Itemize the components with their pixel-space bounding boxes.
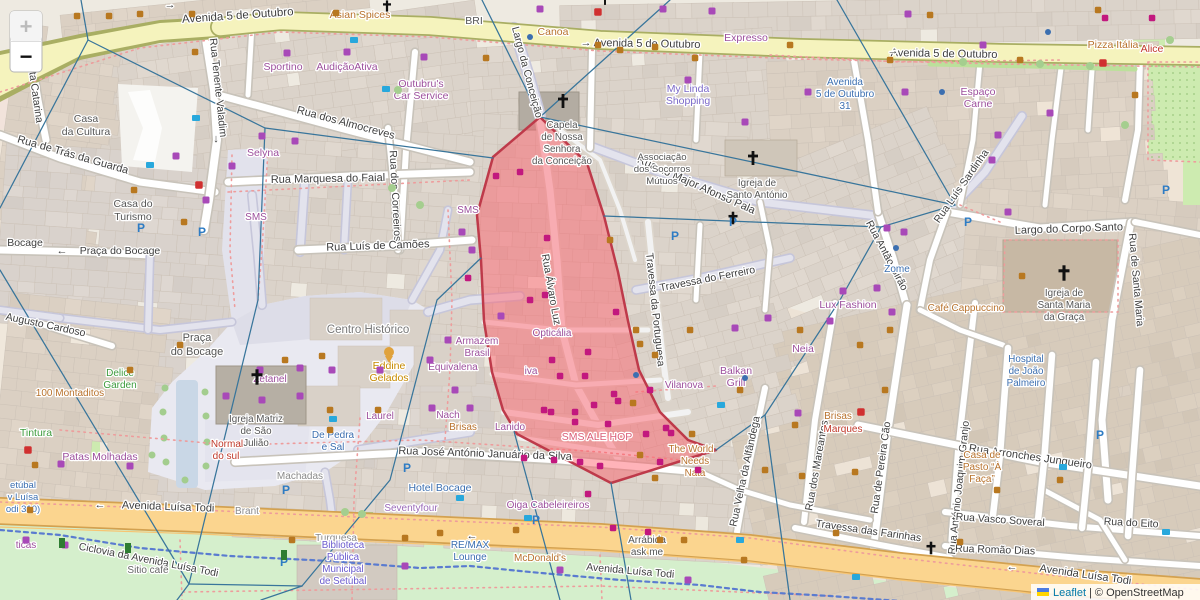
svg-text:→: → — [888, 45, 899, 57]
svg-text:Brant: Brant — [235, 506, 259, 517]
svg-text:P: P — [403, 461, 411, 475]
svg-text:etúbal: etúbal — [10, 480, 36, 491]
svg-text:Brasil: Brasil — [464, 348, 489, 359]
svg-text:Casa de: Casa de — [963, 450, 1001, 461]
svg-text:Leaflet: Leaflet — [1053, 587, 1086, 599]
svg-text:SMS: SMS — [457, 205, 479, 216]
svg-text:de Nossa: de Nossa — [541, 132, 583, 143]
svg-text:odi 310): odi 310) — [6, 504, 40, 515]
svg-text:Oiga Cabeleireiros: Oiga Cabeleireiros — [507, 500, 590, 511]
svg-text:P: P — [532, 513, 540, 527]
svg-text:| © OpenStreetMap: | © OpenStreetMap — [1089, 587, 1184, 599]
svg-text:Carne: Carne — [964, 98, 993, 110]
svg-text:de João: de João — [1009, 366, 1044, 377]
svg-text:P: P — [1162, 183, 1170, 197]
svg-text:Seventyfour: Seventyfour — [384, 503, 438, 514]
svg-text:Garden: Garden — [103, 380, 136, 391]
svg-text:5 de Outubro: 5 de Outubro — [816, 89, 875, 100]
svg-text:Bocage: Bocage — [7, 237, 43, 249]
svg-text:P: P — [198, 225, 206, 239]
svg-text:e Sal: e Sal — [322, 442, 345, 453]
svg-text:My Linda: My Linda — [667, 83, 710, 95]
svg-text:Machadas: Machadas — [277, 471, 323, 482]
svg-text:100 Montaditos: 100 Montaditos — [36, 388, 104, 399]
svg-text:Patas Molhadas: Patas Molhadas — [62, 451, 137, 463]
svg-text:↓: ↓ — [213, 133, 219, 145]
svg-text:Gelados: Gelados — [369, 372, 408, 384]
svg-text:←: ← — [57, 245, 68, 257]
svg-text:→: → — [165, 0, 176, 11]
svg-text:→: → — [581, 37, 592, 49]
svg-text:de Setúbal: de Setúbal — [320, 576, 367, 587]
svg-text:+: + — [20, 14, 33, 39]
svg-text:Senhora: Senhora — [543, 144, 581, 155]
svg-text:←: ← — [95, 499, 106, 511]
svg-text:Avenida 5 de Outubro: Avenida 5 de Outubro — [891, 47, 998, 61]
svg-text:Municipal: Municipal — [322, 564, 363, 575]
svg-text:P: P — [671, 229, 679, 243]
svg-text:Capela: Capela — [546, 120, 578, 131]
svg-text:Equivalena: Equivalena — [428, 362, 478, 373]
svg-text:Needs: Needs — [681, 456, 709, 467]
svg-text:Faça”: Faça” — [969, 474, 995, 485]
svg-text:Brisas: Brisas — [824, 411, 852, 422]
svg-text:Casa: Casa — [74, 113, 99, 125]
svg-text:Vilanova: Vilanova — [665, 380, 704, 391]
svg-text:Santa Maria: Santa Maria — [1038, 300, 1091, 311]
svg-text:Outubru's: Outubru's — [398, 78, 443, 90]
svg-text:31: 31 — [839, 101, 851, 112]
svg-text:Praça: Praça — [183, 332, 213, 344]
svg-text:Santo António: Santo António — [726, 190, 788, 201]
svg-text:Espaço: Espaço — [960, 86, 995, 98]
svg-text:Opticália: Opticália — [533, 328, 572, 339]
svg-text:Café Cappuccino: Café Cappuccino — [928, 303, 1005, 314]
svg-text:Avenida 5 de Outubro: Avenida 5 de Outubro — [594, 37, 701, 51]
svg-text:BRI: BRI — [465, 15, 483, 27]
svg-text:Pasto “À: Pasto “À — [963, 460, 1002, 473]
svg-text:de São: de São — [240, 426, 272, 437]
svg-text:Pizza Itália: Pizza Itália — [1088, 39, 1139, 51]
svg-text:Pública: Pública — [327, 552, 360, 563]
svg-text:v Luísa: v Luísa — [8, 492, 39, 503]
svg-text:Alice: Alice — [1141, 43, 1164, 55]
svg-text:Armazem: Armazem — [456, 336, 499, 347]
svg-text:P: P — [137, 221, 145, 235]
svg-text:Igreja Matriz: Igreja Matriz — [229, 414, 283, 425]
svg-text:Sitio cafe: Sitio cafe — [127, 565, 169, 576]
svg-text:RE/MAX: RE/MAX — [451, 540, 490, 551]
svg-text:Julião: Julião — [243, 438, 269, 449]
svg-text:SMS: SMS — [245, 212, 267, 223]
svg-text:da Graça: da Graça — [1044, 312, 1085, 323]
svg-text:Neia: Neia — [792, 343, 814, 355]
svg-text:Tintura: Tintura — [20, 427, 52, 439]
svg-text:SMS ALE HOP: SMS ALE HOP — [562, 431, 633, 443]
svg-text:Lux Fashion: Lux Fashion — [819, 299, 876, 311]
svg-text:P: P — [282, 483, 290, 497]
svg-text:Zome: Zome — [884, 264, 910, 275]
svg-text:Selyna: Selyna — [247, 147, 279, 159]
svg-text:Avenida: Avenida — [827, 77, 863, 88]
svg-text:Igreja de: Igreja de — [1045, 288, 1084, 299]
svg-text:Sportino: Sportino — [263, 61, 302, 73]
svg-text:da Cultura: da Cultura — [62, 126, 111, 138]
svg-text:AudiçãoAtiva: AudiçãoAtiva — [316, 61, 377, 73]
svg-text:Biblioteca: Biblioteca — [322, 540, 365, 551]
svg-text:Centro Histórico: Centro Histórico — [327, 324, 409, 336]
svg-text:da Conceição: da Conceição — [532, 156, 592, 167]
svg-text:Lounge: Lounge — [453, 552, 487, 563]
svg-text:P: P — [964, 215, 972, 229]
svg-text:Brisas: Brisas — [449, 422, 477, 433]
svg-text:Car Service: Car Service — [394, 90, 449, 102]
svg-text:Associação: Associação — [637, 152, 686, 163]
svg-text:The World: The World — [668, 444, 713, 455]
svg-text:Normal: Normal — [211, 439, 243, 450]
svg-text:P: P — [1096, 428, 1104, 442]
svg-text:Expresso: Expresso — [724, 32, 768, 44]
svg-text:Rua Marquesa do Faial: Rua Marquesa do Faial — [271, 172, 386, 186]
svg-text:Turismo: Turismo — [114, 211, 152, 223]
svg-text:Igreja de: Igreja de — [738, 178, 777, 189]
svg-text:Casa do: Casa do — [113, 198, 152, 210]
svg-text:Praça do Bocage: Praça do Bocage — [80, 245, 161, 257]
svg-text:Nach: Nach — [436, 410, 459, 421]
svg-text:Hospital: Hospital — [1008, 354, 1043, 365]
svg-text:←: ← — [1007, 561, 1018, 573]
svg-text:Marques: Marques — [824, 424, 863, 435]
svg-text:Lanido: Lanido — [495, 422, 525, 433]
svg-text:Shopping: Shopping — [666, 95, 711, 107]
svg-text:Mútuos: Mútuos — [646, 176, 678, 187]
svg-text:Balkan: Balkan — [720, 365, 752, 377]
svg-text:Canoa: Canoa — [538, 26, 569, 38]
svg-text:do sul: do sul — [213, 451, 240, 462]
svg-text:Hotel Bocage: Hotel Bocage — [408, 482, 471, 494]
svg-text:ask me: ask me — [631, 547, 664, 558]
svg-text:Palmeiro: Palmeiro — [1007, 378, 1046, 389]
svg-text:dos Socorros: dos Socorros — [634, 164, 691, 175]
svg-text:McDonald's: McDonald's — [514, 553, 566, 564]
svg-text:iva: iva — [525, 366, 538, 377]
svg-text:−: − — [20, 44, 33, 69]
